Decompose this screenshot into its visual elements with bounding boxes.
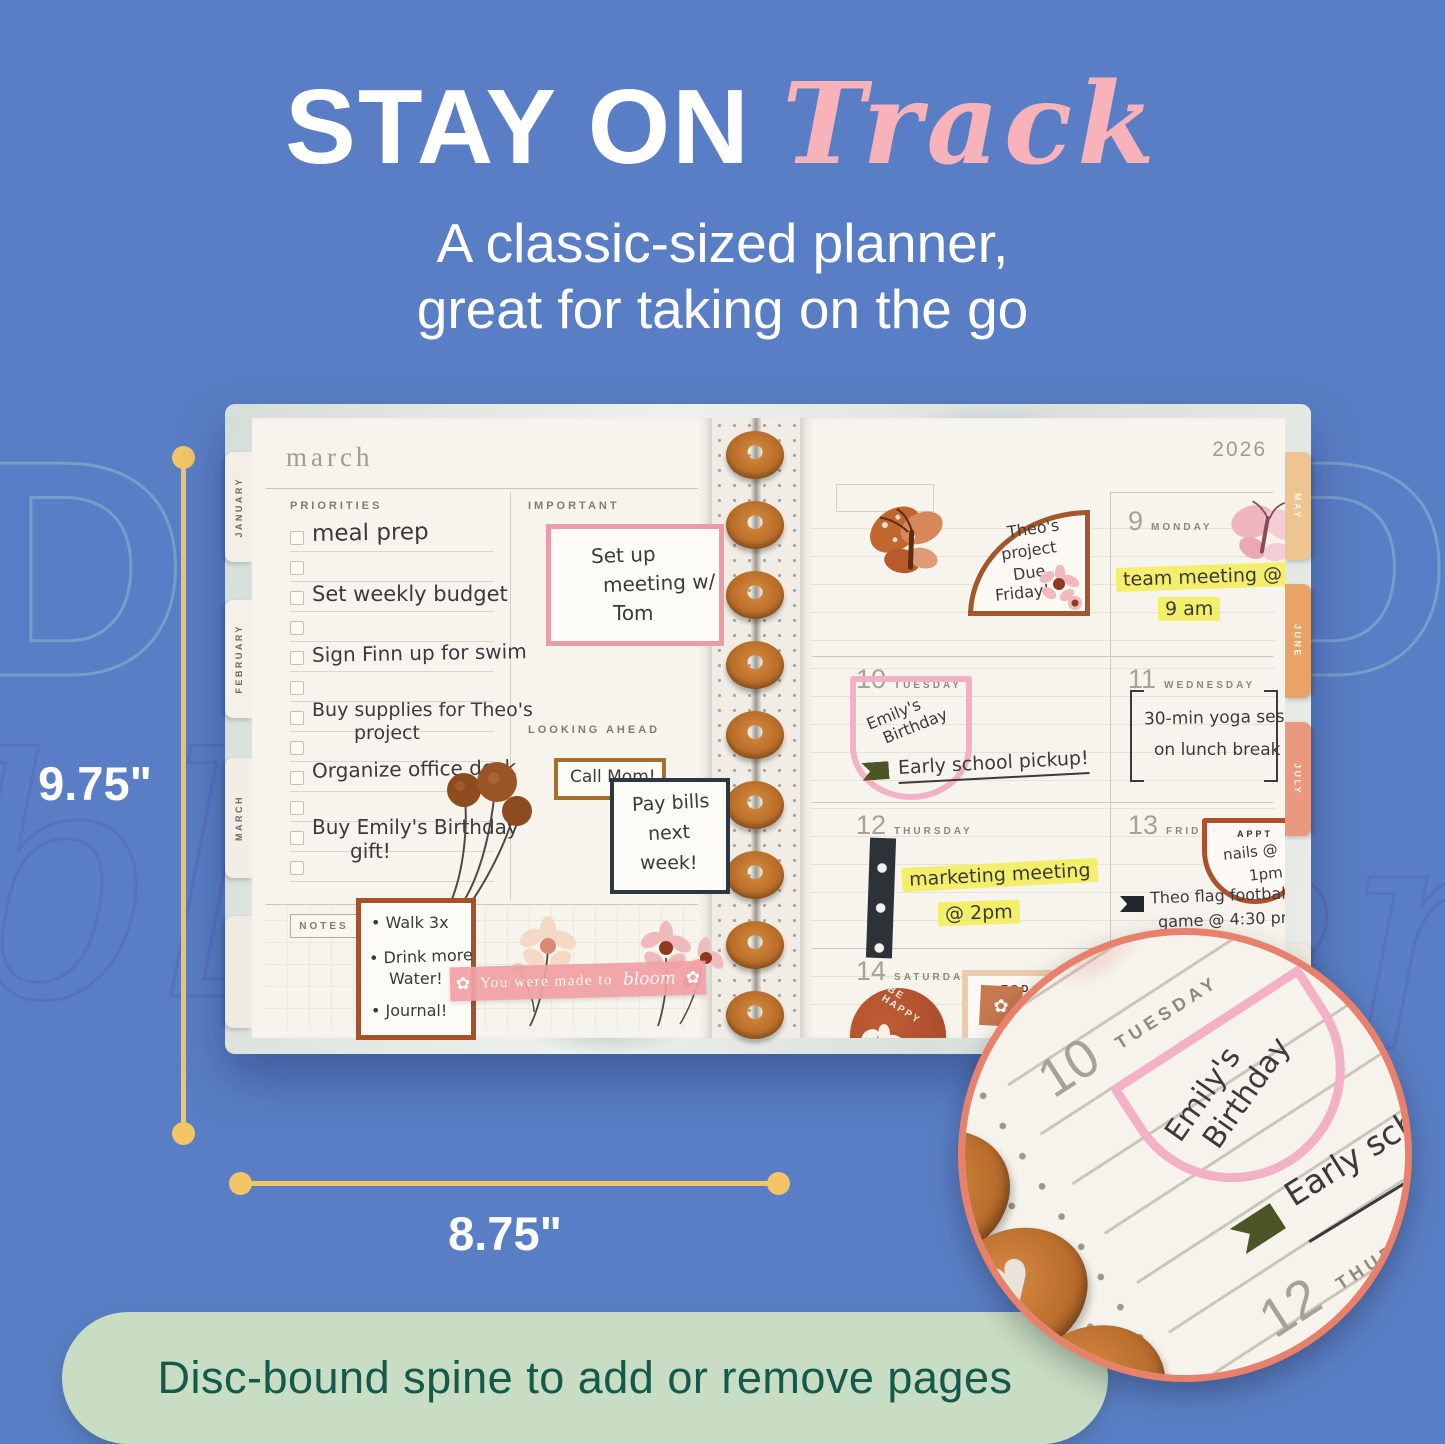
binding-disc — [726, 641, 784, 689]
inset-rotated-page: 10 TUESDAY Emily's Birthday Early school… — [958, 928, 1412, 1382]
binding-disc — [726, 711, 784, 759]
priority-item: meal prep — [312, 519, 429, 547]
important-note-box: Set up meeting w/ Tom — [546, 524, 724, 646]
tab-march: MARCH — [225, 758, 252, 878]
checklist-row — [290, 612, 494, 642]
day-label-14: 14 SATURDAY — [856, 956, 972, 987]
checkbox-icon — [290, 681, 304, 695]
header: STAY ON Track A classic-sized planner, g… — [0, 66, 1445, 342]
binding-disc — [726, 571, 784, 619]
important-label: IMPORTANT — [528, 500, 620, 512]
entry-highlighted: @ 2pm — [938, 901, 1020, 926]
notes-line: Water! — [389, 969, 443, 988]
cell-rule — [1110, 492, 1273, 493]
feature-banner: Disc-bound spine to add or remove pages — [62, 1312, 1108, 1444]
month-heading: march — [286, 442, 373, 473]
checkbox-icon — [290, 561, 304, 575]
black-washi-sticker — [866, 838, 896, 959]
binding-disc — [726, 921, 784, 969]
subtitle-line-2: great for taking on the go — [0, 276, 1445, 342]
height-dimension-line — [181, 456, 186, 1134]
butterfly-sticker-pink — [1219, 491, 1285, 576]
feature-banner-text: Disc-bound spine to add or remove pages — [158, 1352, 1013, 1404]
priority-item: Buy supplies for Theo's — [312, 699, 533, 721]
notes-rule — [266, 904, 698, 905]
notes-label: NOTES — [290, 914, 358, 938]
priority-item-line2: gift! — [350, 839, 391, 863]
checkbox-icon — [290, 741, 304, 755]
tab-may: MAY — [1284, 452, 1311, 560]
width-dimension-dot-right — [767, 1172, 790, 1195]
product-infographic: DATED bl er STAY ON Track A classic-size… — [0, 0, 1445, 1444]
tab-february: FEBRUARY — [225, 600, 252, 718]
checkbox-icon — [290, 621, 304, 635]
daisy-icon: ✿ — [456, 974, 471, 994]
checkbox-icon — [290, 591, 304, 605]
day-label-9: 9 MONDAY — [1128, 506, 1213, 537]
background-outline-script-left: bl — [0, 690, 263, 1074]
title-accent: Track — [782, 59, 1160, 190]
height-dimension-label: 9.75" — [24, 756, 166, 811]
daisy-icon: ✿ — [686, 968, 701, 988]
subtitle-line-1: A classic-sized planner, — [0, 210, 1445, 276]
dried-flower-sticker — [420, 756, 540, 906]
page-title: STAY ON Track — [0, 66, 1445, 184]
binding-disc — [726, 501, 784, 549]
washi-quote-sticker: ✿ You were made to bloom ✿ — [450, 961, 707, 1002]
washi-text: You were made to — [480, 972, 613, 992]
checkbox-icon — [290, 801, 304, 815]
priority-item: Set weekly budget — [312, 582, 508, 606]
cell-rule — [812, 802, 1273, 803]
checkbox-icon — [290, 651, 304, 665]
year-heading: 2026 — [1212, 438, 1267, 462]
height-dimension-dot-bottom — [172, 1122, 195, 1145]
binding-disc — [726, 851, 784, 899]
checkbox-icon — [290, 831, 304, 845]
white-flower-icon — [858, 1022, 918, 1038]
checkbox-icon — [290, 711, 304, 725]
binding-disc — [726, 431, 784, 479]
priority-item: Sign Finn up for swim — [312, 639, 527, 667]
checkbox-icon — [290, 531, 304, 545]
width-dimension-label: 8.75" — [440, 1206, 570, 1261]
checkbox-icon — [290, 861, 304, 875]
day-label-12: 12 THURSDAY — [856, 810, 973, 841]
checklist-row — [290, 672, 494, 702]
binding-disc — [726, 991, 784, 1039]
butterfly-sticker-orange — [852, 492, 964, 601]
pay-bills-box: Pay bills next week! — [610, 778, 730, 894]
tab-january: JANUARY — [225, 452, 252, 562]
entry-highlighted: 9 am — [1158, 598, 1220, 620]
cell-rule — [812, 656, 1273, 657]
priorities-label: PRIORITIES — [290, 500, 382, 512]
washi-accent: bloom — [623, 968, 676, 989]
disc-binding-zoom-inset: 10 TUESDAY Emily's Birthday Early school… — [958, 928, 1412, 1382]
tab-blank-left — [225, 916, 252, 1028]
binding-disc — [726, 781, 784, 829]
tab-july: JULY — [1284, 722, 1311, 836]
tab-june: JUNE — [1284, 584, 1311, 698]
bracketed-note: 30-min yoga sesh on lunch break — [1130, 690, 1278, 782]
left-page: march PRIORITIES meal prep Set weekly bu… — [252, 418, 712, 1038]
header-rule — [266, 488, 698, 489]
subtitle: A classic-sized planner, great for takin… — [0, 210, 1445, 342]
width-dimension-dot-left — [229, 1172, 252, 1195]
width-dimension-line — [240, 1181, 778, 1186]
daisy-icon — [1035, 565, 1085, 613]
height-dimension-dot-top — [172, 446, 195, 469]
looking-ahead-label: LOOKING AHEAD — [528, 724, 660, 736]
priority-item-line2: project — [354, 722, 420, 744]
checklist-row — [290, 552, 494, 582]
title-main: STAY ON — [285, 68, 782, 186]
checkbox-icon — [290, 771, 304, 785]
